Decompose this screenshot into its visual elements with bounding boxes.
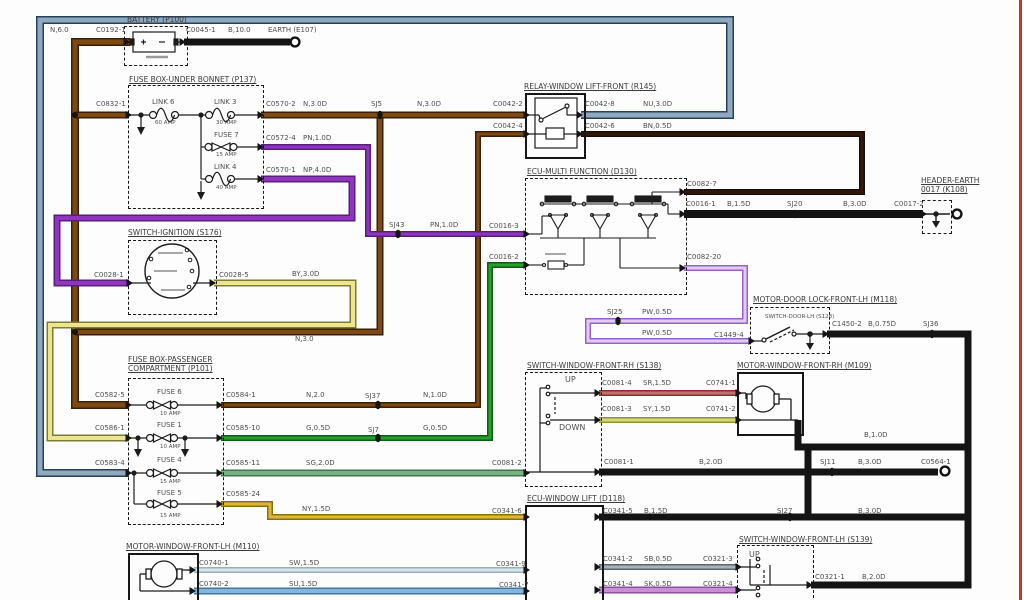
wire-label: N,3.0D (303, 100, 327, 108)
wire-label: 40 AMP (216, 184, 237, 192)
wire-label: B,3.0D (858, 507, 882, 515)
wire-label: C0583-4 (95, 459, 125, 467)
wire-label: C0341-2 (603, 555, 633, 563)
wire-label: C0586-1 (95, 424, 125, 432)
wire-label: C0045-1 (186, 26, 216, 34)
wire-label: C0081-4 (602, 379, 632, 387)
wire-label: C0585-11 (226, 459, 260, 467)
wire-label: 15 AMP (216, 151, 237, 159)
wire-label: C0081-2 (492, 459, 522, 467)
motor-door-lock-title: MOTOR-DOOR LOCK-FRONT-LH (M118) (753, 295, 897, 304)
wire-label: SWITCH-DOOR-LH (S128) (765, 313, 834, 321)
wire-label: LINK 3 (214, 98, 236, 106)
wire-label: C0570-1 (266, 166, 296, 174)
wire-label: C0082-7 (687, 180, 717, 188)
wire-label: SJ43 (389, 221, 404, 229)
wire-label: C0341-7 (499, 581, 529, 589)
wire-label: C1449-4 (714, 331, 744, 339)
wire-label: 60 AMP (155, 119, 176, 127)
wire-label: SG,2.0D (306, 459, 335, 467)
wire-label: B,1.5D (644, 507, 668, 515)
wire-label: C0016-3 (489, 222, 519, 230)
wire-label: SJ27 (777, 507, 792, 515)
wire-label: SY,1.5D (643, 405, 670, 413)
wire-label: C0042-8 (585, 100, 615, 108)
wire-label: SJ25 (607, 308, 622, 316)
wire-label: SB,0.5D (644, 555, 672, 563)
wire-label: FUSE 4 (157, 456, 182, 464)
wire-label: C0585-24 (226, 490, 260, 498)
wire-label: N,2.0 (306, 391, 325, 399)
wire-label: C1450-2 (832, 320, 862, 328)
wire-label: C0741-1 (706, 379, 736, 387)
wire-label: C0341-4 (603, 580, 633, 588)
wire-label: C0570-2 (266, 100, 296, 108)
page-border-right (1019, 0, 1022, 600)
fusebox-passenger-title: COMPARTMENT (P101) (128, 364, 213, 373)
wiring-diagram-canvas: BATTERY (P100)FUSE BOX-UNDER BONNET (P13… (0, 0, 1024, 600)
wire-label: N,3.0D (417, 100, 441, 108)
wire-label: 15 AMP (160, 478, 181, 486)
wire-label: PW,0.5D (642, 308, 672, 316)
wire-label: SJ5 (371, 100, 382, 108)
wire-label: C0321-3 (703, 555, 733, 563)
wire-label: NP,4.0D (303, 166, 331, 174)
wire-label: B,3.0D (843, 200, 867, 208)
wire-label: SR,1.5D (643, 379, 671, 387)
wire-label: PN,1.0D (430, 221, 458, 229)
wire-label: 10 AMP (160, 443, 181, 451)
fusebox-under-bonnet-title: FUSE BOX-UNDER BONNET (P137) (129, 75, 256, 84)
wire-label: C0042-2 (493, 100, 523, 108)
wire-label: C0042-4 (493, 122, 523, 130)
relay-window-lift-title: RELAY-WINDOW LIFT-FRONT (R145) (524, 82, 656, 91)
wire-label: 15 AMP (160, 512, 181, 520)
wire-label: DOWN (559, 424, 585, 432)
wire-label: C0740-2 (199, 580, 229, 588)
wire-label: C0192-1 (96, 26, 126, 34)
wire-label: FUSE 7 (214, 131, 239, 139)
wire-label: C0042-6 (585, 122, 615, 130)
wire-label: FUSE 1 (157, 421, 182, 429)
wire-label: EARTH (E107) (268, 26, 317, 34)
wire-label: C0741-2 (706, 405, 736, 413)
wire-label: B,0.75D (868, 320, 896, 328)
wire-label: UP (749, 551, 760, 559)
wire-label: BN,0.5D (643, 122, 672, 130)
switch-ignition-title: SWITCH-IGNITION (S176) (128, 228, 222, 237)
wire-label: SK,0.5D (644, 580, 672, 588)
wire-label: BY,3.0D (292, 270, 319, 278)
wire-label: C0832-1 (96, 100, 126, 108)
wire-label: C0016-1 (686, 200, 716, 208)
wire-label: C0028-5 (219, 271, 249, 279)
fusebox-passenger-title: FUSE BOX-PASSENGER (128, 355, 212, 364)
wire-label: B,2.0D (862, 573, 886, 581)
wire-label: N,3.0 (295, 335, 314, 343)
wire-label: SJ20 (787, 200, 802, 208)
switch-window-rh-title: SWITCH-WINDOW-FRONT-RH (S138) (527, 361, 661, 370)
wire-label: B,2.0D (699, 458, 723, 466)
header-earth-title: HEADER-EARTH (921, 176, 979, 185)
wire-label: C0028-1 (94, 271, 124, 279)
wire-label: C0572-4 (266, 134, 296, 142)
header-earth-title: 0017 (K108) (921, 185, 968, 194)
wire-label: SJ36 (923, 320, 938, 328)
labels-layer: BATTERY (P100)FUSE BOX-UNDER BONNET (P13… (0, 0, 1024, 600)
ecu-multi-function-title: ECU-MULTI FUNCTION (D130) (527, 167, 637, 176)
wire-label: SJ37 (365, 392, 380, 400)
wire-label: C0017-2 (894, 200, 924, 208)
wire-label: FUSE 6 (157, 388, 182, 396)
wire-label: SJ11 (820, 458, 835, 466)
wire-label: C0082-20 (687, 253, 721, 261)
wire-label: C0564-1 (921, 458, 951, 466)
wire-label: C0585-10 (226, 424, 260, 432)
wire-label: C0582-5 (95, 391, 125, 399)
battery-title: BATTERY (P100) (127, 15, 187, 24)
wire-label: N,1.0D (423, 391, 447, 399)
wire-label: B,1.5D (727, 200, 751, 208)
wire-label: NU,3.0D (643, 100, 672, 108)
wire-label: LINK 6 (152, 98, 174, 106)
wire-label: SJ7 (368, 426, 379, 434)
switch-window-lh-title: SWITCH-WINDOW-FRONT-LH (S139) (739, 535, 872, 544)
wire-label: B,1.0D (864, 431, 888, 439)
wire-label: B,10.0 (228, 26, 251, 34)
wire-label: C0016-2 (489, 253, 519, 261)
wire-label: UP (565, 376, 576, 384)
wire-label: B,3.0D (858, 458, 882, 466)
wire-label: SU,1.5D (289, 580, 317, 588)
wire-label: C0321-4 (703, 580, 733, 588)
wire-label: NY,1.5D (302, 505, 330, 513)
wire-label: PN,1.0D (303, 134, 331, 142)
ecu-window-lift-title: ECU-WINDOW LIFT (D118) (527, 494, 625, 503)
wire-label: FUSE 5 (157, 489, 182, 497)
wire-label: C0341-9 (496, 560, 526, 568)
wire-label: SW,1.5D (289, 559, 319, 567)
wire-label: C0341-5 (603, 507, 633, 515)
wire-label: G,0.5D (306, 424, 330, 432)
wire-label: 30 AMP (216, 119, 237, 127)
wire-label: N,6.0 (50, 26, 69, 34)
wire-label: C0321-1 (815, 573, 845, 581)
wire-label: C0081-3 (602, 405, 632, 413)
wire-label: C0584-1 (226, 391, 256, 399)
wire-label: PW,0.5D (642, 329, 672, 337)
motor-window-lh-title: MOTOR-WINDOW-FRONT-LH (M110) (126, 542, 259, 551)
wire-label: C0081-1 (604, 458, 634, 466)
wire-label: G,0.5D (423, 424, 447, 432)
wire-label: C0341-6 (492, 507, 522, 515)
wire-label: C0740-1 (199, 559, 229, 567)
wire-label: LINK 4 (214, 163, 236, 171)
wire-label: 10 AMP (160, 410, 181, 418)
motor-window-rh-title: MOTOR-WINDOW-FRONT-RH (M109) (737, 361, 871, 370)
